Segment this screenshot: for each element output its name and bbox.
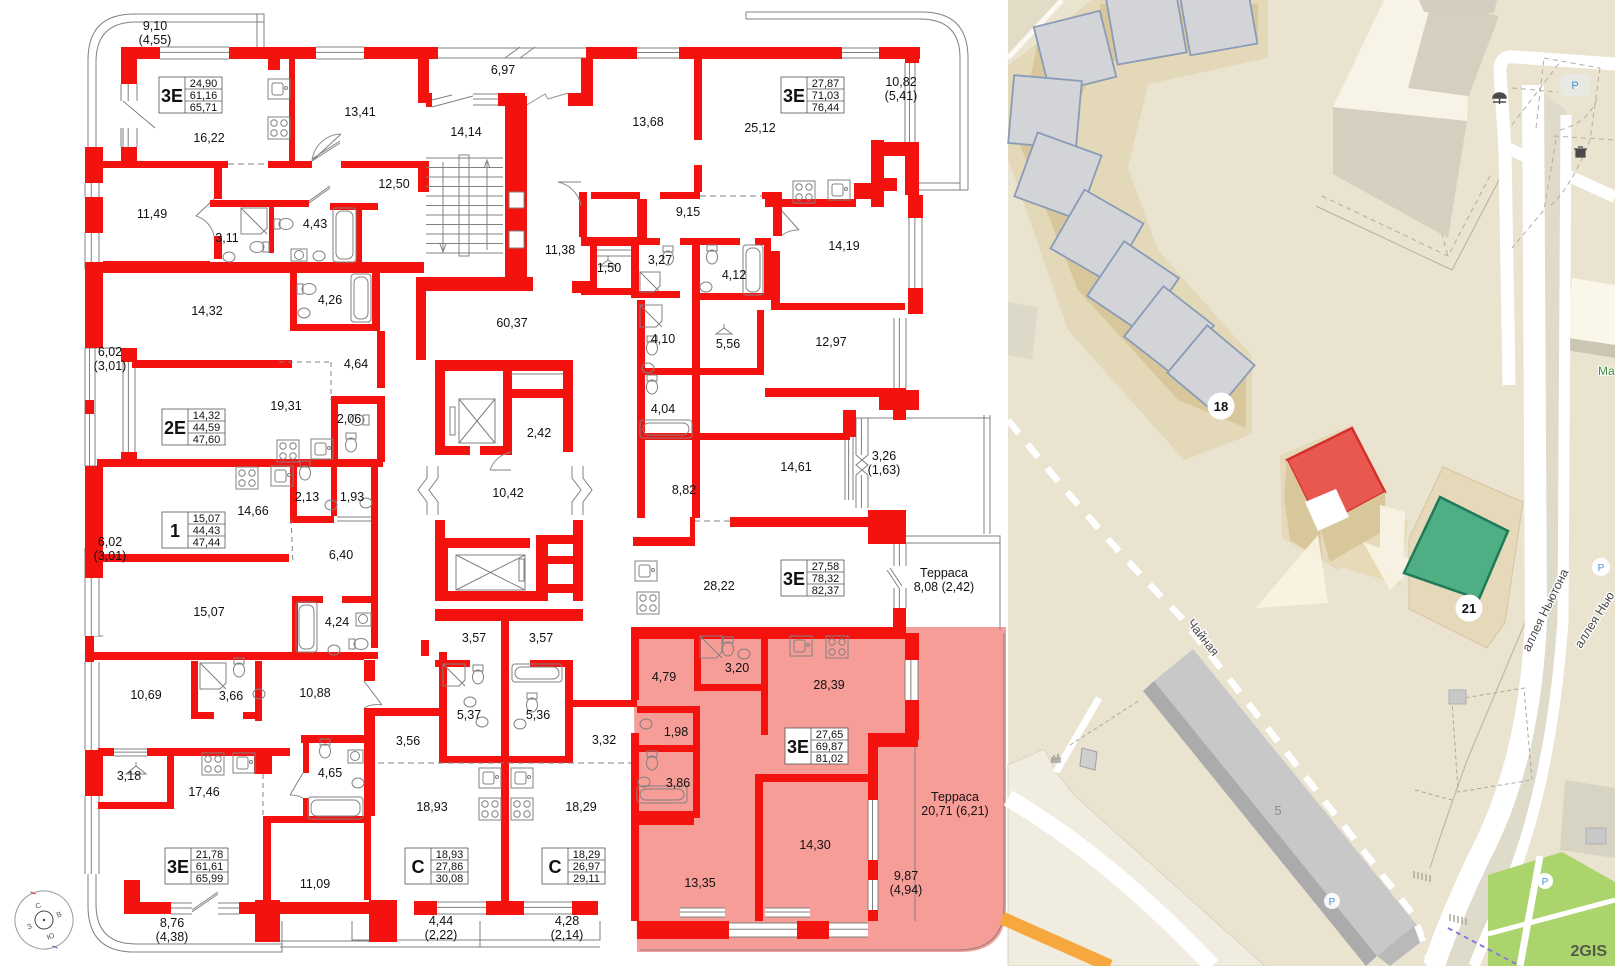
svg-text:3,86: 3,86 bbox=[666, 776, 690, 790]
svg-text:P: P bbox=[1598, 563, 1605, 574]
svg-text:27,65: 27,65 bbox=[816, 729, 844, 741]
svg-text:29,11: 29,11 bbox=[573, 873, 600, 885]
svg-text:10,82: 10,82 bbox=[885, 75, 916, 89]
svg-text:13,68: 13,68 bbox=[632, 115, 663, 129]
svg-text:3,27: 3,27 bbox=[648, 253, 672, 267]
svg-text:4,44: 4,44 bbox=[429, 914, 453, 928]
svg-text:2,13: 2,13 bbox=[295, 490, 319, 504]
svg-text:82,37: 82,37 bbox=[812, 585, 840, 597]
svg-text:4,24: 4,24 bbox=[325, 615, 349, 629]
svg-text:С: С bbox=[549, 857, 562, 877]
svg-text:81,02: 81,02 bbox=[816, 753, 844, 765]
svg-text:6,97: 6,97 bbox=[491, 63, 515, 77]
svg-text:27,87: 27,87 bbox=[812, 78, 840, 90]
svg-text:18,29: 18,29 bbox=[573, 849, 601, 861]
svg-text:14,30: 14,30 bbox=[799, 838, 830, 852]
svg-text:4,12: 4,12 bbox=[722, 268, 746, 282]
svg-text:2GIS: 2GIS bbox=[1571, 943, 1608, 960]
svg-text:60,37: 60,37 bbox=[496, 316, 527, 330]
svg-text:1: 1 bbox=[170, 521, 180, 541]
svg-text:28,22: 28,22 bbox=[703, 579, 734, 593]
svg-text:P: P bbox=[1329, 897, 1336, 908]
svg-text:47,60: 47,60 bbox=[193, 434, 221, 446]
svg-text:4,28: 4,28 bbox=[555, 914, 579, 928]
svg-text:11,38: 11,38 bbox=[545, 243, 575, 257]
svg-text:18,29: 18,29 bbox=[565, 800, 596, 814]
svg-text:4,64: 4,64 bbox=[344, 357, 368, 371]
svg-text:4,04: 4,04 bbox=[651, 402, 675, 416]
svg-text:4,26: 4,26 bbox=[318, 293, 342, 307]
svg-text:Терраса: Терраса bbox=[931, 790, 979, 804]
svg-text:28,39: 28,39 bbox=[813, 678, 844, 692]
svg-text:47,44: 47,44 bbox=[193, 537, 221, 549]
svg-text:3,11: 3,11 bbox=[215, 231, 238, 245]
svg-text:26,97: 26,97 bbox=[573, 861, 601, 873]
svg-text:10,88: 10,88 bbox=[299, 686, 330, 700]
svg-text:6,02: 6,02 bbox=[98, 535, 122, 549]
svg-text:27,86: 27,86 bbox=[436, 861, 464, 873]
svg-text:(2,14): (2,14) bbox=[551, 928, 584, 942]
svg-text:44,43: 44,43 bbox=[193, 525, 221, 537]
svg-text:Терраса: Терраса bbox=[920, 566, 968, 580]
svg-text:15,07: 15,07 bbox=[193, 513, 221, 525]
svg-text:1,98: 1,98 bbox=[664, 725, 688, 739]
svg-text:10,69: 10,69 bbox=[130, 688, 161, 702]
svg-text:(5,41): (5,41) bbox=[885, 89, 918, 103]
svg-text:69,87: 69,87 bbox=[816, 741, 844, 753]
svg-text:P: P bbox=[1542, 877, 1549, 888]
svg-text:3,26: 3,26 bbox=[872, 449, 896, 463]
svg-text:3E: 3E bbox=[783, 569, 805, 589]
svg-text:2,42: 2,42 bbox=[527, 426, 551, 440]
svg-text:24,90: 24,90 bbox=[190, 78, 218, 90]
svg-text:3,56: 3,56 bbox=[396, 734, 420, 748]
svg-text:14,19: 14,19 bbox=[828, 239, 859, 253]
svg-text:3,57: 3,57 bbox=[529, 631, 553, 645]
svg-text:65,71: 65,71 bbox=[190, 102, 218, 114]
svg-text:3,18: 3,18 bbox=[117, 769, 141, 783]
svg-text:25,12: 25,12 bbox=[744, 121, 775, 135]
svg-text:1,50: 1,50 bbox=[597, 261, 621, 275]
svg-text:9,87: 9,87 bbox=[894, 869, 918, 883]
svg-text:9,10: 9,10 bbox=[143, 19, 167, 33]
svg-text:4,43: 4,43 bbox=[303, 217, 327, 231]
svg-text:6,40: 6,40 bbox=[329, 548, 353, 562]
svg-text:44,59: 44,59 bbox=[193, 422, 221, 434]
svg-text:5,36: 5,36 bbox=[526, 708, 550, 722]
svg-text:Ma: Ma bbox=[1598, 364, 1615, 378]
svg-text:3E: 3E bbox=[787, 737, 809, 757]
svg-text:6,02: 6,02 bbox=[98, 345, 122, 359]
svg-text:3,57: 3,57 bbox=[462, 631, 486, 645]
svg-text:3E: 3E bbox=[161, 86, 183, 106]
svg-text:21,78: 21,78 bbox=[196, 849, 224, 861]
svg-text:4,10: 4,10 bbox=[651, 332, 675, 346]
svg-text:14,32: 14,32 bbox=[193, 410, 221, 422]
svg-text:16,22: 16,22 bbox=[193, 131, 224, 145]
svg-text:11,09: 11,09 bbox=[300, 877, 330, 891]
svg-text:76,44: 76,44 bbox=[812, 102, 840, 114]
svg-text:2,06: 2,06 bbox=[337, 412, 361, 426]
svg-text:13,41: 13,41 bbox=[344, 105, 375, 119]
svg-text:3,32: 3,32 bbox=[592, 733, 616, 747]
svg-text:12,50: 12,50 bbox=[378, 177, 409, 191]
svg-text:14,61: 14,61 bbox=[780, 460, 811, 474]
svg-text:(3,01): (3,01) bbox=[94, 359, 127, 373]
svg-text:21: 21 bbox=[1462, 601, 1476, 616]
svg-text:17,46: 17,46 bbox=[188, 785, 219, 799]
svg-text:3E: 3E bbox=[167, 857, 189, 877]
svg-text:19,31: 19,31 bbox=[270, 399, 301, 413]
svg-text:18: 18 bbox=[1214, 399, 1228, 414]
svg-text:5,56: 5,56 bbox=[716, 337, 740, 351]
svg-text:61,61: 61,61 bbox=[196, 861, 224, 873]
svg-text:15,07: 15,07 bbox=[193, 605, 224, 619]
svg-text:14,66: 14,66 bbox=[237, 504, 268, 518]
svg-text:(4,38): (4,38) bbox=[156, 930, 189, 944]
svg-text:(2,22): (2,22) bbox=[425, 928, 458, 942]
svg-text:18,93: 18,93 bbox=[436, 849, 464, 861]
svg-text:4,79: 4,79 bbox=[652, 670, 676, 684]
svg-text:11,49: 11,49 bbox=[137, 207, 167, 221]
svg-text:8,76: 8,76 bbox=[160, 916, 184, 930]
svg-text:(1,63): (1,63) bbox=[868, 463, 901, 477]
svg-text:14,14: 14,14 bbox=[450, 125, 481, 139]
svg-text:10,42: 10,42 bbox=[492, 486, 523, 500]
svg-text:(3,01): (3,01) bbox=[94, 549, 127, 563]
svg-text:71,03: 71,03 bbox=[812, 90, 840, 102]
svg-text:13,35: 13,35 bbox=[684, 876, 715, 890]
svg-text:3,66: 3,66 bbox=[219, 689, 243, 703]
svg-text:9,15: 9,15 bbox=[676, 205, 700, 219]
svg-text:61,16: 61,16 bbox=[190, 90, 218, 102]
svg-text:1,93: 1,93 bbox=[340, 490, 364, 504]
svg-text:65,99: 65,99 bbox=[196, 873, 224, 885]
svg-text:С: С bbox=[412, 857, 425, 877]
svg-text:4,65: 4,65 bbox=[318, 766, 342, 780]
svg-text:(4,94): (4,94) bbox=[890, 883, 923, 897]
svg-text:2E: 2E bbox=[164, 418, 186, 438]
svg-text:14,32: 14,32 bbox=[191, 304, 222, 318]
svg-text:3,20: 3,20 bbox=[725, 661, 749, 675]
svg-text:P: P bbox=[1571, 80, 1578, 92]
svg-text:30,08: 30,08 bbox=[436, 873, 464, 885]
svg-text:5: 5 bbox=[1274, 803, 1281, 818]
svg-text:5,37: 5,37 bbox=[457, 708, 481, 722]
svg-text:20,71 (6,21): 20,71 (6,21) bbox=[921, 804, 988, 818]
svg-text:(4,55): (4,55) bbox=[139, 33, 172, 47]
svg-text:78,32: 78,32 bbox=[812, 573, 840, 585]
svg-text:8,08 (2,42): 8,08 (2,42) bbox=[914, 580, 974, 594]
svg-text:12,97: 12,97 bbox=[815, 335, 846, 349]
svg-text:3E: 3E bbox=[783, 86, 805, 106]
svg-text:18,93: 18,93 bbox=[416, 800, 447, 814]
svg-text:8,82: 8,82 bbox=[672, 483, 696, 497]
svg-text:27,58: 27,58 bbox=[812, 561, 840, 573]
